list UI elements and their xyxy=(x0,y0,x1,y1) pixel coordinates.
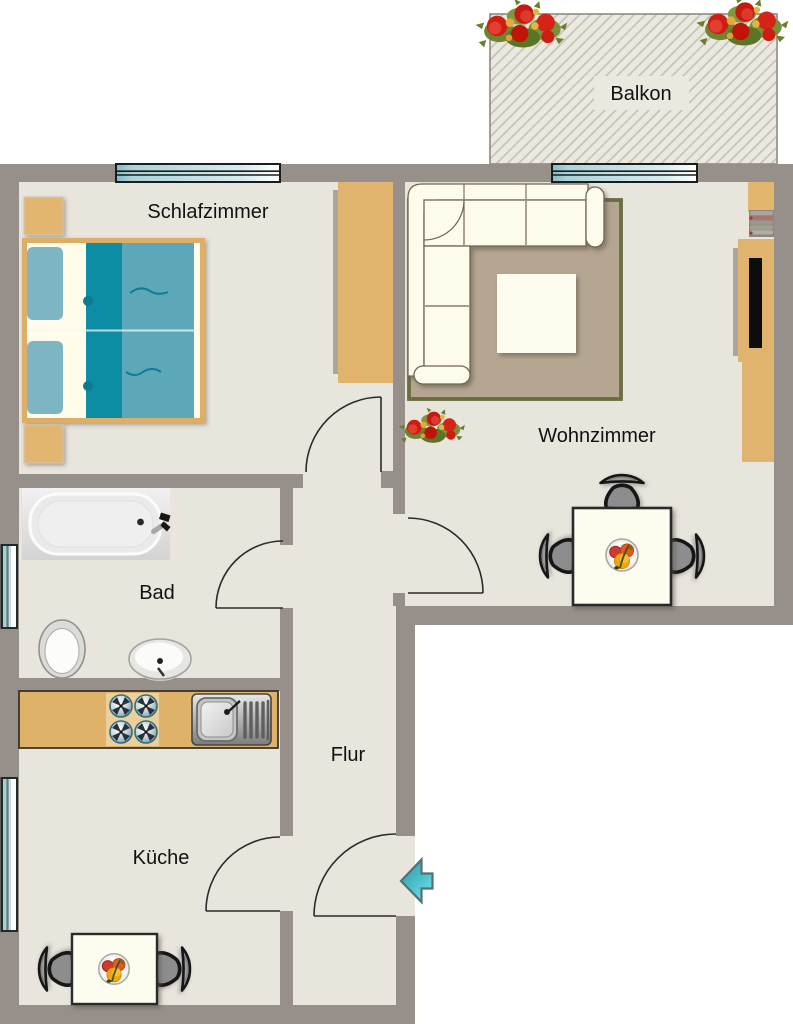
svg-text:Küche: Küche xyxy=(133,847,190,869)
svg-text:Balkon: Balkon xyxy=(610,83,671,105)
svg-text:Schlafzimmer: Schlafzimmer xyxy=(147,201,268,223)
svg-text:Bad: Bad xyxy=(139,582,175,604)
svg-text:Wohnzimmer: Wohnzimmer xyxy=(538,425,656,447)
svg-text:Flur: Flur xyxy=(331,744,366,766)
